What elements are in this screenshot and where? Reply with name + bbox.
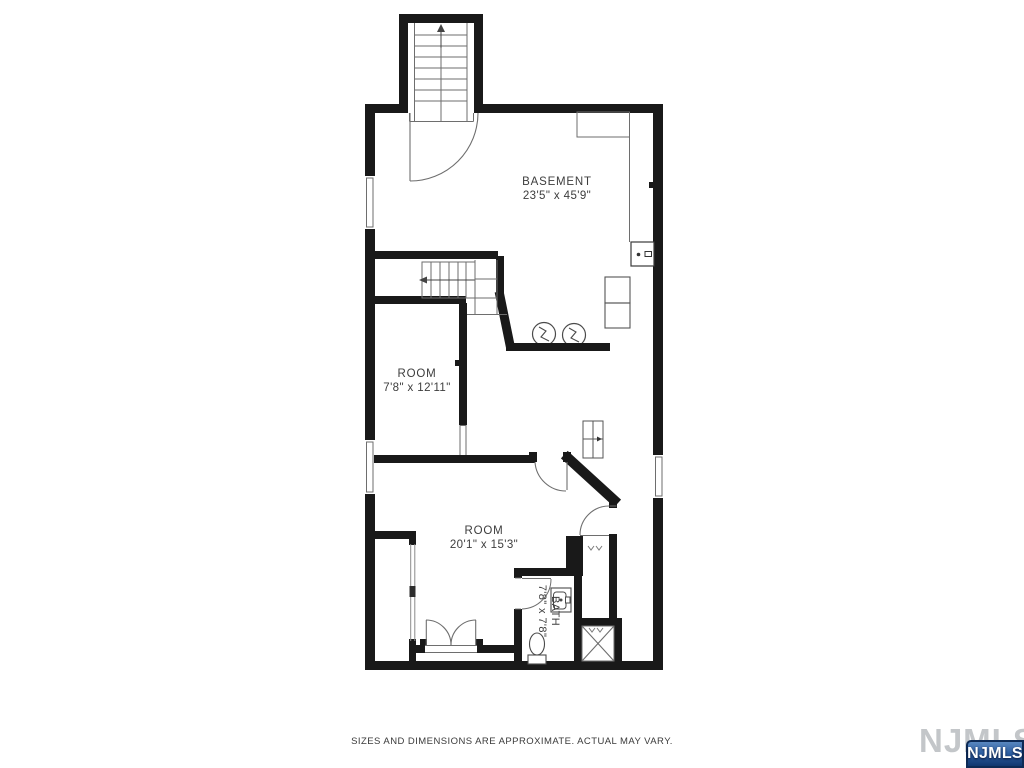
floor-plan-page: BASEMENT 23'5" x 45'9" ROOM 7'8" x 12'11… [0,0,1024,768]
wall-doorway-left [416,645,425,653]
closet-rod-icon [589,628,603,632]
stairwell-wall-top [399,14,483,23]
basement-dims: 23'5" x 45'9" [522,189,592,203]
room-large-label: ROOM 20'1" x 15'3" [450,524,518,552]
cased-opening [460,425,466,456]
stairs-up-arrow-icon [437,24,445,32]
basement-features [533,112,655,347]
wall-top-right [474,104,663,113]
french-doors-icon [425,620,477,653]
door-swing-icon [535,462,567,491]
room-small-label: ROOM 7'8" x 12'11" [383,367,450,395]
basement-label: BASEMENT 23'5" x 45'9" [522,175,592,203]
wall-mechanical [506,343,610,351]
window-icon [364,440,376,494]
stairs-up-icon [410,23,474,122]
wall-stairs-upper [365,251,498,259]
wall-tick [649,182,654,188]
closet-rod-icon [588,546,602,550]
stairs-down-arrow-icon [419,277,427,284]
washer-dryer-icon [605,277,630,328]
toilet-icon [528,633,546,664]
furnace-icon [533,323,556,346]
door-jamb [529,452,537,462]
room-large-dims: 20'1" x 15'3" [450,538,518,552]
door-swing-icon [410,113,478,181]
electrical-panel-icon [631,242,654,266]
wall-diagonal-upper [500,296,510,345]
window-icon [364,176,376,229]
njmls-badge: NJMLS [966,740,1024,768]
wall-hatch-top [574,618,622,626]
wall-bath-left [514,609,522,663]
interior-walls-lower [365,452,622,670]
wall-diagonal-lower [568,458,614,500]
wall-store-top [365,531,416,539]
window-icon [653,455,665,498]
wall-closet-right [609,534,617,618]
sliding-door-icon [410,544,416,641]
room-small-dims: 7'8" x 12'11" [383,381,450,395]
bath-dims: 7'8" x 7'8" [535,585,548,638]
njmls-badge-text: NJMLS [967,745,1023,763]
stairwell-wall-left [399,14,408,113]
room-small-name: ROOM [383,367,450,381]
wall-bath-top [514,568,567,576]
wall-tick [455,360,461,366]
door-swing-icon [580,506,617,536]
wall-bath-corner [566,536,583,576]
wall-store-stub-bottom [409,639,416,663]
wall-room-small-top [365,296,466,304]
njmls-branding: NJMLS NJMLS [914,723,1024,768]
disclaimer-text: SIZES AND DIMENSIONS ARE APPROXIMATE. AC… [0,736,1024,747]
bath-label: BATH 7'8" x 7'8" [535,585,561,638]
door-jamb [476,639,483,646]
wall-store-stub-top [409,531,416,545]
floor-plan-drawing [0,0,1024,768]
room-large-name: ROOM [450,524,518,538]
stairwell-wall-right [474,14,483,113]
wall-room-large-top [374,455,535,463]
wall-tick [369,357,374,364]
hatched-area-icon [582,626,614,661]
wall-right [653,104,663,670]
bath-name: BATH [548,585,561,638]
basement-name: BASEMENT [522,175,592,189]
shelf-nook [577,112,630,137]
vent-window-icon [583,421,603,458]
windows [364,176,665,498]
wall-doorway-right [477,645,514,653]
wall-hatch-right [614,626,622,670]
